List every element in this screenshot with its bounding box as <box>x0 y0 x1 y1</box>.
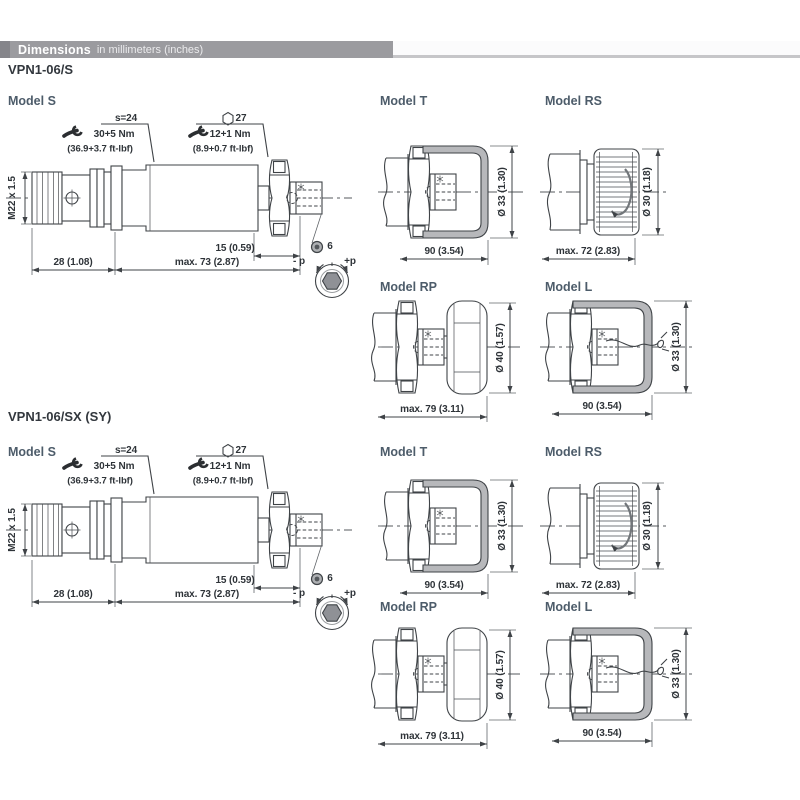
hex-socket-size: 6 <box>327 574 332 584</box>
cap-length-dim: 90 (3.54) <box>424 247 463 257</box>
model-t-drawing: Ø 33 (1.30) 90 (3.54) <box>378 138 528 270</box>
knob-length-dim: max. 72 (2.83) <box>556 247 620 257</box>
model-rp-drawing: Ø 40 (1.57) max. 79 (3.11) <box>378 293 528 429</box>
torque-1-ftlbf: (36.9+3.7 ft-lbf) <box>67 476 133 486</box>
minus-p-label: - p <box>293 257 305 267</box>
model-rs-label: Model RS <box>545 95 602 108</box>
thread-dim: M22 x 1.5 <box>8 176 18 220</box>
hex-size-label: 27 <box>236 114 247 124</box>
ccw-arrow <box>317 265 324 274</box>
valve-side-art <box>0 104 370 314</box>
torque-1-ftlbf: (36.9+3.7 ft-lbf) <box>67 144 133 154</box>
model-rp-drawing: Ø 40 (1.57) max. 79 (3.11) <box>378 620 528 756</box>
torque-2-nm: 12+1 Nm <box>210 130 251 140</box>
model-l-label: Model L <box>545 281 592 294</box>
knob-diameter-dim: Ø 40 (1.57) <box>496 650 506 699</box>
model-t-label: Model T <box>380 446 427 459</box>
knob-diameter-dim: Ø 30 (1.18) <box>643 167 653 216</box>
knob-hex-art <box>323 273 342 289</box>
adjust-length-dim: 15 (0.59) <box>215 576 254 586</box>
knob-diameter-dim: Ø 40 (1.57) <box>496 323 506 372</box>
front-length-dim: 28 (1.08) <box>53 258 92 268</box>
section-title-vpn1-06-s: VPN1-06/S <box>8 63 73 76</box>
cap-diameter-dim: Ø 33 (1.30) <box>498 501 508 550</box>
seal-twist <box>657 332 669 351</box>
torque-2-nm: 12+1 Nm <box>210 462 251 472</box>
plus-p-label: +p <box>344 589 356 599</box>
model-rs-drawing: Ø 30 (1.18) max. 72 (2.83) <box>540 138 675 270</box>
page-subtitle: in millimeters (inches) <box>97 44 203 56</box>
model-s-drawing: s=24 27 30+5 Nm (36.9+3.7 ft-lbf) 12+1 N… <box>0 436 370 646</box>
adjust-length-dim: 15 (0.59) <box>215 244 254 254</box>
wrench-size-label: s=24 <box>115 446 137 456</box>
model-s-drawing: s=24 27 30+5 Nm (36.9+3.7 ft-lbf) 12+1 N… <box>0 104 370 314</box>
page-title: Dimensions <box>18 43 91 57</box>
thread-dim: M22 x 1.5 <box>8 508 18 552</box>
hex-size-label: 27 <box>236 446 247 456</box>
plus-p-label: +p <box>344 257 356 267</box>
torque-2-ftlbf: (8.9+0.7 ft-lbf) <box>193 476 253 486</box>
model-rs-label: Model RS <box>545 446 602 459</box>
header-accent-chip <box>0 41 10 58</box>
header-bar: Dimensions in millimeters (inches) <box>10 41 393 58</box>
model-t-label: Model T <box>380 95 427 108</box>
model-t-drawing: Ø 33 (1.30) 90 (3.54) <box>378 472 528 604</box>
knob-hex-art <box>323 605 342 621</box>
knob-diameter-dim: Ø 30 (1.18) <box>643 501 653 550</box>
cap-length-dim: 90 (3.54) <box>582 729 621 739</box>
datasheet-page: { "header": { "title": "Dimensions", "su… <box>0 0 800 800</box>
minus-p-label: - p <box>293 589 305 599</box>
model-rs-drawing: Ø 30 (1.18) max. 72 (2.83) <box>540 472 675 604</box>
torque-1-nm: 30+5 Nm <box>94 462 135 472</box>
body-length-dim: max. 73 (2.87) <box>175 590 239 600</box>
cap-diameter-dim: Ø 33 (1.30) <box>672 322 682 371</box>
valve-side-art <box>0 436 370 646</box>
torque-1-nm: 30+5 Nm <box>94 130 135 140</box>
model-l-drawing: Ø 33 (1.30) 90 (3.54) <box>540 620 700 756</box>
seal-twist <box>657 659 669 678</box>
cap-diameter-dim: Ø 33 (1.30) <box>672 649 682 698</box>
model-l-drawing: Ø 33 (1.30) 90 (3.54) <box>540 293 700 429</box>
cap-length-dim: 90 (3.54) <box>424 581 463 591</box>
knob-length-dim: max. 79 (3.11) <box>400 405 464 415</box>
ccw-arrow <box>317 597 324 606</box>
hex-socket-size: 6 <box>327 242 332 252</box>
cap-length-dim: 90 (3.54) <box>582 402 621 412</box>
body-length-dim: max. 73 (2.87) <box>175 258 239 268</box>
section-title-vpn1-06-sx: VPN1-06/SX (SY) <box>8 410 111 423</box>
cap-diameter-dim: Ø 33 (1.30) <box>498 167 508 216</box>
knob-length-dim: max. 79 (3.11) <box>400 732 464 742</box>
hexagon-icon <box>223 113 233 126</box>
header-rule <box>393 41 800 58</box>
front-length-dim: 28 (1.08) <box>53 590 92 600</box>
hexagon-icon <box>223 445 233 458</box>
wrench-size-label: s=24 <box>115 114 137 124</box>
torque-2-ftlbf: (8.9+0.7 ft-lbf) <box>193 144 253 154</box>
knob-length-dim: max. 72 (2.83) <box>556 581 620 591</box>
model-rp-label: Model RP <box>380 281 437 294</box>
